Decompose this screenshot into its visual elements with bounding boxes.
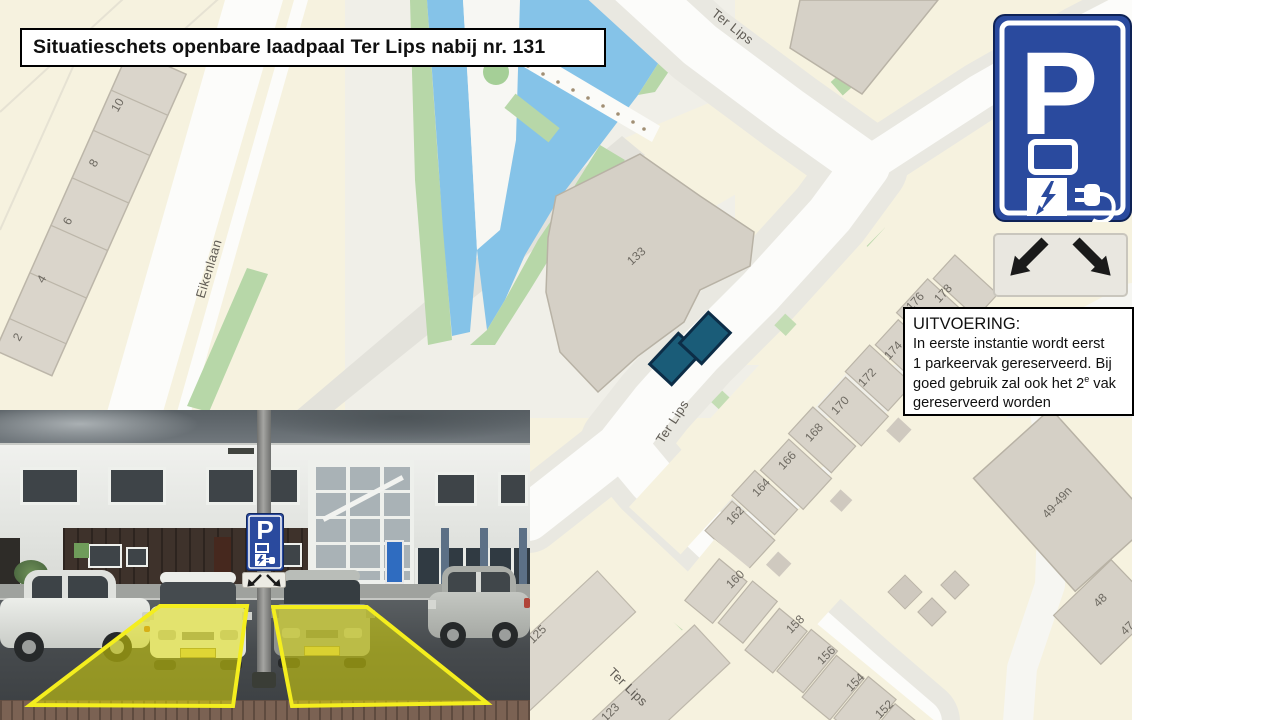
lamppost-base xyxy=(252,672,276,688)
photo-sign-p-letter: P xyxy=(256,515,273,545)
title-box: Situatieschets openbare laadpaal Ter Lip… xyxy=(20,28,606,67)
photo-parking-sign: P xyxy=(246,513,284,571)
charge-station-icon xyxy=(1027,178,1067,216)
highlight-bay-right xyxy=(273,607,487,706)
page-title: Situatieschets openbare laadpaal Ter Lip… xyxy=(33,36,545,59)
uitvoering-line: In eerste instantie wordt eerst xyxy=(913,335,1124,354)
uitvoering-line: goed gebruik zal ook het 2e vak xyxy=(913,374,1124,394)
street-photo: P xyxy=(0,410,530,720)
uitvoering-line: gereserveerd worden xyxy=(913,394,1124,413)
parking-sign-group: P xyxy=(993,14,1132,292)
arrows-subsign xyxy=(993,233,1128,297)
photo-charge-station-icon xyxy=(255,554,266,566)
photo-arrows-subsign xyxy=(242,572,286,588)
situatieschets-canvas: Eikenlaan Ter Lips Ter Lips Ter Lips 2 4… xyxy=(0,0,1280,720)
uitvoering-heading: UITVOERING: xyxy=(913,313,1124,335)
ev-parking-sign: P xyxy=(993,14,1132,222)
uitvoering-line: 1 parkeervak gereserveerd. Bij xyxy=(913,355,1124,374)
highlight-bay-left xyxy=(30,606,247,706)
uitvoering-box: UITVOERING: In eerste instantie wordt ee… xyxy=(903,307,1134,416)
